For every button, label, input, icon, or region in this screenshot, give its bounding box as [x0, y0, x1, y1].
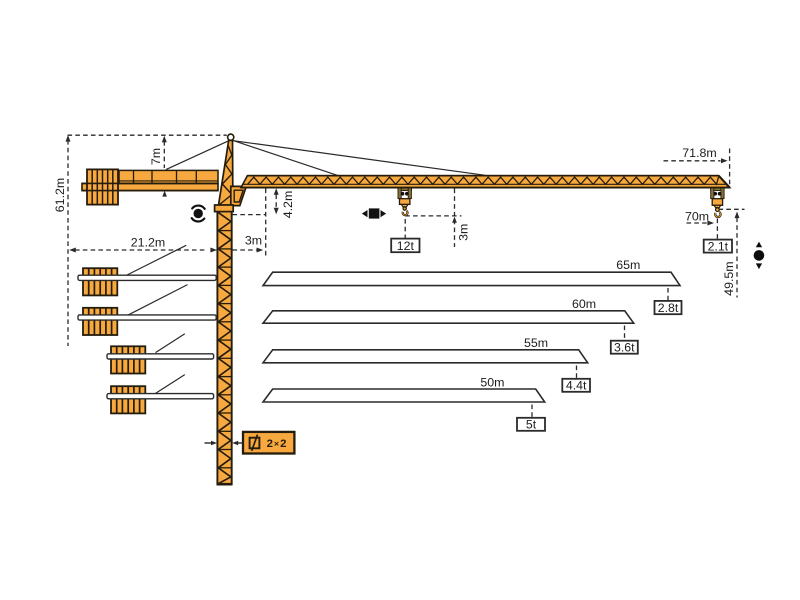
svg-text:71.8m: 71.8m: [682, 146, 716, 160]
svg-text:55m: 55m: [524, 336, 548, 350]
svg-text:3m: 3m: [245, 234, 262, 248]
svg-text:4.4t: 4.4t: [566, 379, 587, 393]
svg-text:61.2m: 61.2m: [53, 178, 67, 212]
svg-text:50m: 50m: [480, 376, 504, 390]
svg-text:12t: 12t: [397, 239, 415, 253]
svg-text:2.8t: 2.8t: [658, 301, 679, 315]
svg-text:21.2m: 21.2m: [131, 236, 165, 250]
svg-text:49.5m: 49.5m: [722, 261, 736, 295]
svg-text:7m: 7m: [149, 148, 163, 165]
svg-text:60m: 60m: [572, 297, 596, 311]
svg-text:3m: 3m: [456, 224, 470, 241]
svg-text:3.6t: 3.6t: [614, 341, 635, 355]
svg-text:65m: 65m: [616, 258, 640, 272]
svg-text:2×2: 2×2: [267, 438, 288, 450]
svg-text:2.1t: 2.1t: [708, 240, 729, 254]
svg-text:5t: 5t: [526, 418, 537, 432]
svg-text:70m: 70m: [685, 210, 709, 224]
svg-text:4.2m: 4.2m: [281, 191, 295, 219]
